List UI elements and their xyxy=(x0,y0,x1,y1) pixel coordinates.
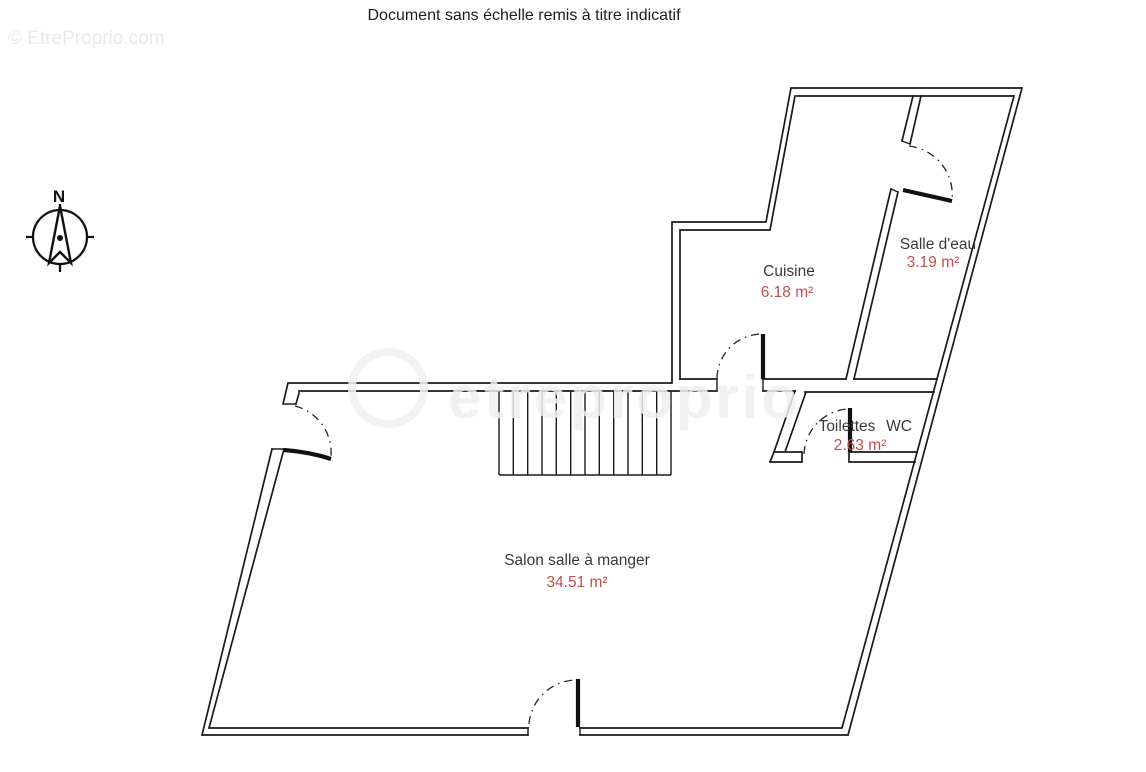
room-label-cuisine: Cuisine xyxy=(763,263,815,280)
watermark-corner: © EtreProprio.com xyxy=(8,28,165,49)
watermark-center: etreproprio xyxy=(448,364,801,431)
room-area-salon: 34.51 m² xyxy=(546,574,607,591)
room-label-salon: Salon salle à manger xyxy=(504,552,650,569)
room-area-cuisine: 6.18 m² xyxy=(761,284,814,301)
room-label-toilettes: Toilettes xyxy=(819,418,876,435)
room-label-salle-deau: Salle d'eau xyxy=(900,236,976,253)
plan-title: Document sans échelle remis à titre indi… xyxy=(367,7,681,24)
floor-plan-page: etreproprio N Document sans échelle remi… xyxy=(0,0,1146,772)
room-area-salle-deau: 3.19 m² xyxy=(907,254,960,271)
compass-north-icon: N xyxy=(26,187,94,272)
door-leaves xyxy=(284,190,952,727)
room-area-toilettes: 2.63 m² xyxy=(834,437,887,454)
room-label-wc: WC xyxy=(886,418,912,435)
door-arcs xyxy=(295,146,952,724)
compass-north-label: N xyxy=(53,187,65,206)
floor-plan-svg: etreproprio N Document sans échelle remi… xyxy=(0,0,1146,772)
